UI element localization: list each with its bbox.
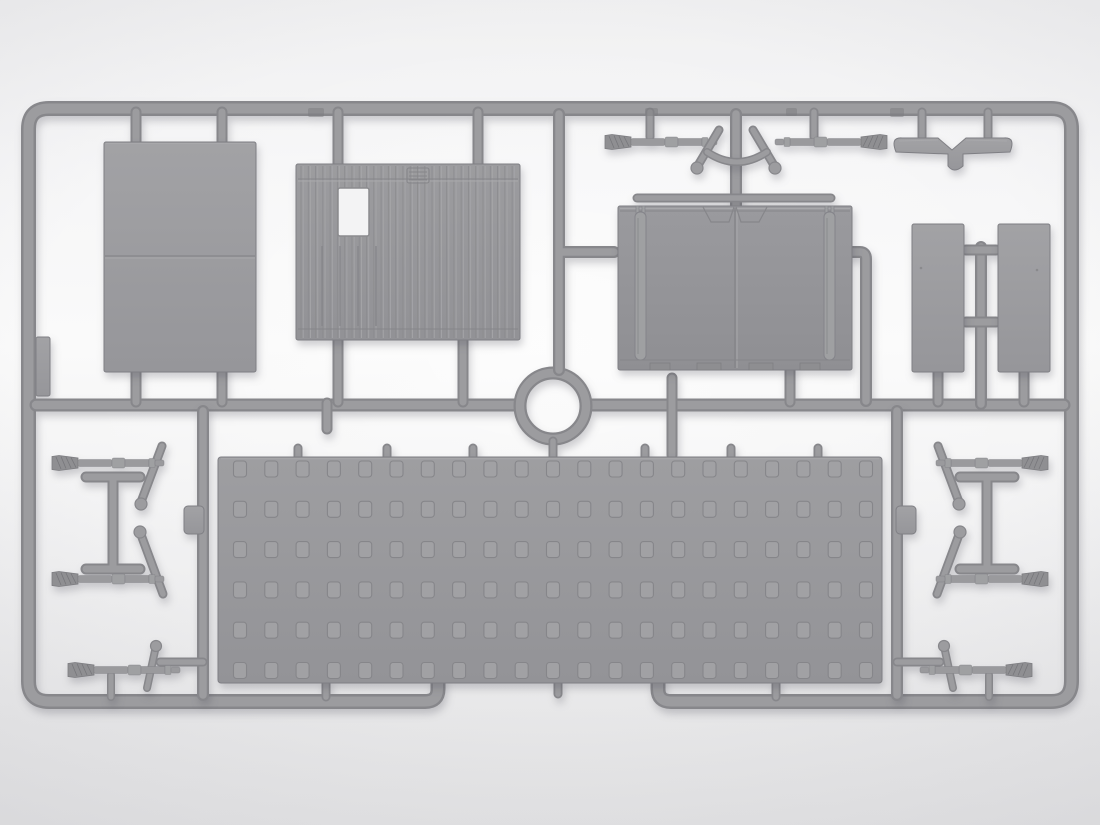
floor-dimple (672, 622, 685, 638)
floor-dimple (734, 663, 747, 679)
floor-dimple (421, 501, 434, 517)
floor-dimple (234, 501, 247, 517)
floor-dimple (640, 622, 653, 638)
floor-dimple (797, 663, 810, 679)
floor-dimple (390, 622, 403, 638)
floor-dimple (703, 663, 716, 679)
floor-dimple (296, 542, 309, 558)
floor-dimple (609, 501, 622, 517)
gate-remnant (645, 108, 658, 116)
floor-dimple (703, 622, 716, 638)
floor-dimple (327, 542, 340, 558)
floor-dimple (234, 542, 247, 558)
floor-dimple (390, 582, 403, 598)
floor-dimple (766, 582, 779, 598)
floor-dimple (390, 461, 403, 477)
floor-dimple (484, 663, 497, 679)
floor-dimple (421, 582, 434, 598)
floor-dimple (640, 461, 653, 477)
floor-dimple (484, 461, 497, 477)
floor-dimple (609, 622, 622, 638)
floor-dimple (359, 582, 372, 598)
floor-dimple (797, 622, 810, 638)
floor-dimple (484, 622, 497, 638)
mudguard-y-part (894, 138, 1012, 170)
floor-dimple (734, 461, 747, 477)
floor-dimple (327, 663, 340, 679)
floor-dimple (609, 582, 622, 598)
floor-dimple (578, 622, 591, 638)
floor-dimple (797, 501, 810, 517)
floor-dimple (359, 461, 372, 477)
gate-remnant (308, 108, 324, 117)
floor-dimple (860, 663, 873, 679)
floor-dimple (828, 542, 841, 558)
floor-dimple (734, 542, 747, 558)
floor-dimple (265, 461, 278, 477)
floor-dimple (860, 461, 873, 477)
side-plank-right (998, 224, 1050, 372)
floor-dimple (797, 461, 810, 477)
floor-dimple (578, 542, 591, 558)
floor-dimple (640, 582, 653, 598)
floor-dimple (421, 663, 434, 679)
floor-dimple (547, 622, 560, 638)
floor-dimple (860, 501, 873, 517)
floor-dimple (296, 622, 309, 638)
floor-dimple (234, 461, 247, 477)
roof-panel-part (104, 142, 256, 372)
floor-dimple (390, 542, 403, 558)
molded-parts (52, 130, 1050, 697)
floor-dimple (484, 501, 497, 517)
floor-dimple (327, 622, 340, 638)
floor-dimple (672, 582, 685, 598)
floor-dimple (766, 663, 779, 679)
floor-dimple (797, 542, 810, 558)
floor-dimple (453, 501, 466, 517)
sprue-photo (0, 0, 1100, 825)
hinge-rail (824, 206, 835, 360)
floor-dimple (515, 582, 528, 598)
floor-dimple (453, 663, 466, 679)
floor-dimple (734, 582, 747, 598)
corrugated-wall-part (296, 164, 520, 340)
floor-dimple (453, 461, 466, 477)
floor-dimple (703, 501, 716, 517)
floor-dimple (265, 542, 278, 558)
floor-dimple (390, 501, 403, 517)
floor-dimple (609, 461, 622, 477)
tool-set-left (52, 411, 204, 697)
floor-dimple (265, 582, 278, 598)
floor-dimple (640, 663, 653, 679)
floor-dimple (672, 501, 685, 517)
floor-dimple (265, 622, 278, 638)
floor-dimple (515, 663, 528, 679)
floor-dimple (515, 622, 528, 638)
floor-dimple (734, 501, 747, 517)
floor-dimple (703, 542, 716, 558)
floor-dimple (766, 542, 779, 558)
floor-dimple (547, 582, 560, 598)
floor-dimple (296, 582, 309, 598)
floor-dimple (547, 501, 560, 517)
floor-dimple (578, 501, 591, 517)
floor-dimple (828, 501, 841, 517)
floor-dimple (828, 461, 841, 477)
floor-dimple (828, 622, 841, 638)
floor-dimple (860, 582, 873, 598)
floor-dimple (547, 663, 560, 679)
floor-dimple (672, 663, 685, 679)
hinge-rail (635, 206, 646, 360)
floor-dimple (296, 501, 309, 517)
floor-dimple (421, 461, 434, 477)
ejector-mark (1036, 269, 1039, 272)
gate-remnant (890, 108, 904, 117)
floor-dimple (547, 461, 560, 477)
rear-doors-part (618, 198, 852, 370)
floor-dimple (234, 622, 247, 638)
floor-dimple (453, 622, 466, 638)
floor-dimple (515, 542, 528, 558)
floor-dimple (359, 542, 372, 558)
floor-dimple (234, 582, 247, 598)
floor-dimple (640, 542, 653, 558)
floor-dimple (359, 622, 372, 638)
floor-dimple (828, 663, 841, 679)
floor-dimple (766, 461, 779, 477)
floor-dimple (484, 582, 497, 598)
gate-remnant (786, 108, 797, 116)
floor-dimple (547, 542, 560, 558)
floor-dimple (327, 501, 340, 517)
floor-dimple (828, 582, 841, 598)
floor-dimple (609, 542, 622, 558)
floor-dimple (296, 663, 309, 679)
floor-dimple (484, 542, 497, 558)
floor-dimple (578, 582, 591, 598)
floor-dimple (860, 542, 873, 558)
floor-dimple (327, 461, 340, 477)
floor-dimple (640, 501, 653, 517)
floor-dimple (265, 501, 278, 517)
floor-dimple (860, 622, 873, 638)
floor-dimple (766, 501, 779, 517)
floor-dimple (296, 461, 309, 477)
floor-dimple (327, 582, 340, 598)
floor-dimple (734, 622, 747, 638)
floor-dimple (265, 663, 278, 679)
window-cutout (338, 188, 369, 236)
floor-dimple (421, 542, 434, 558)
frame-tab (36, 337, 50, 396)
floor-dimple (672, 461, 685, 477)
floor-dimple (359, 663, 372, 679)
floor-dimple (390, 663, 403, 679)
floor-dimple (609, 663, 622, 679)
floor-dimple (234, 663, 247, 679)
floor-dimple (359, 501, 372, 517)
floor-dimple (703, 461, 716, 477)
tool-set-right (896, 411, 1048, 697)
floor-dimple (453, 542, 466, 558)
floor-dimple (453, 582, 466, 598)
floor-dimple (797, 582, 810, 598)
floor-dimple (766, 622, 779, 638)
floor-dimple (578, 663, 591, 679)
floor-dimple (578, 461, 591, 477)
floor-dimple (421, 622, 434, 638)
floor-dimple (515, 461, 528, 477)
ejector-mark (920, 267, 923, 270)
perforated-floor-part (218, 457, 882, 683)
floor-dimple (515, 501, 528, 517)
floor-dimple (703, 582, 716, 598)
floor-dimple (672, 542, 685, 558)
side-plank-left (912, 224, 964, 372)
